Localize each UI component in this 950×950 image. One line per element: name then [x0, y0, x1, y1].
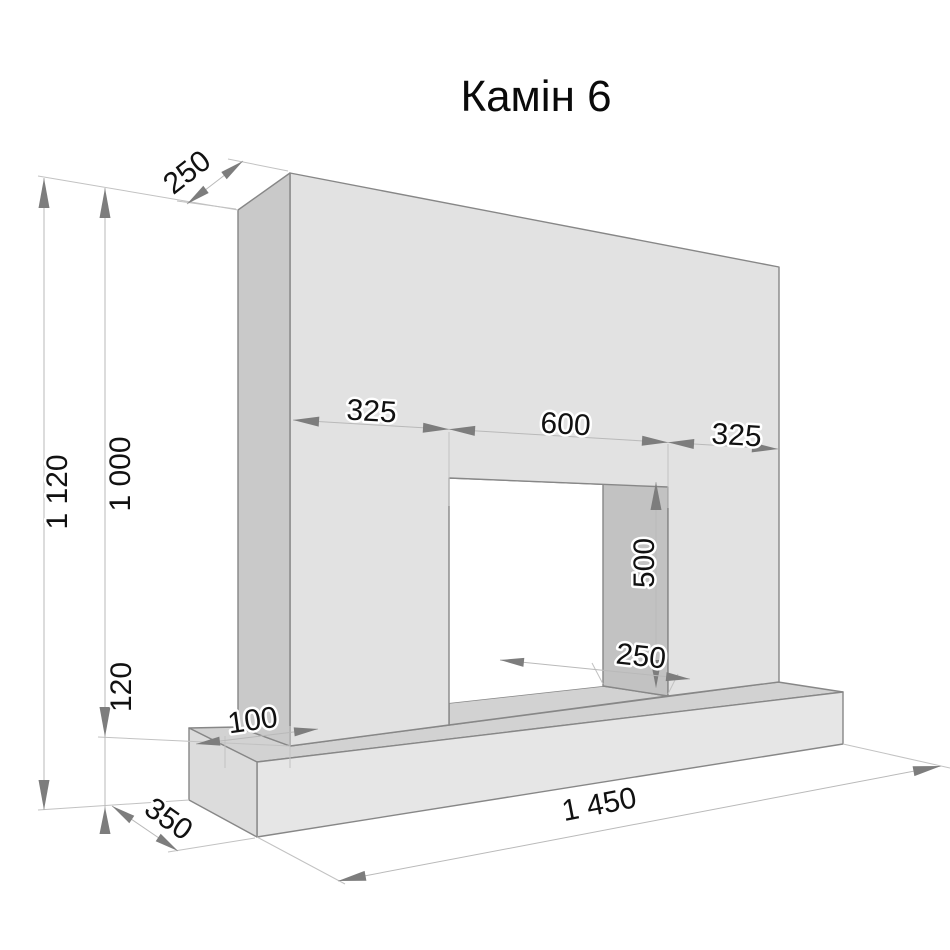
- dim-label-body-height: 1 000: [104, 436, 137, 511]
- dim-overall-height: 1 120: [39, 178, 75, 810]
- dim-label-opening-depth: 250: [614, 638, 667, 676]
- dim-label-opening-height: 500: [628, 538, 661, 588]
- body-left-face: [238, 173, 290, 746]
- dim-label-overall-height: 1 120: [41, 454, 74, 529]
- dim-label-plinth-width: 1 450: [559, 781, 639, 828]
- dim-label-plinth-height: 120: [105, 662, 138, 712]
- dim-label-left-pier: 325: [346, 394, 398, 430]
- drawing-title: Камін 6: [460, 72, 611, 121]
- dim-label-opening-width: 600: [540, 407, 592, 443]
- dim-body-depth: 250: [157, 144, 243, 204]
- fireplace-object: [189, 173, 843, 837]
- technical-drawing-svg: 1 120 1 000 120 250 325 600 325: [0, 0, 950, 950]
- fireplace-drawing-canvas: 1 120 1 000 120 250 325 600 325: [0, 0, 950, 950]
- dim-label-right-pier: 325: [711, 418, 763, 454]
- dim-plinth-height: 120: [100, 662, 139, 834]
- dim-label-plinth-margin: 100: [226, 701, 280, 741]
- dim-body-height: 1 000: [100, 188, 138, 737]
